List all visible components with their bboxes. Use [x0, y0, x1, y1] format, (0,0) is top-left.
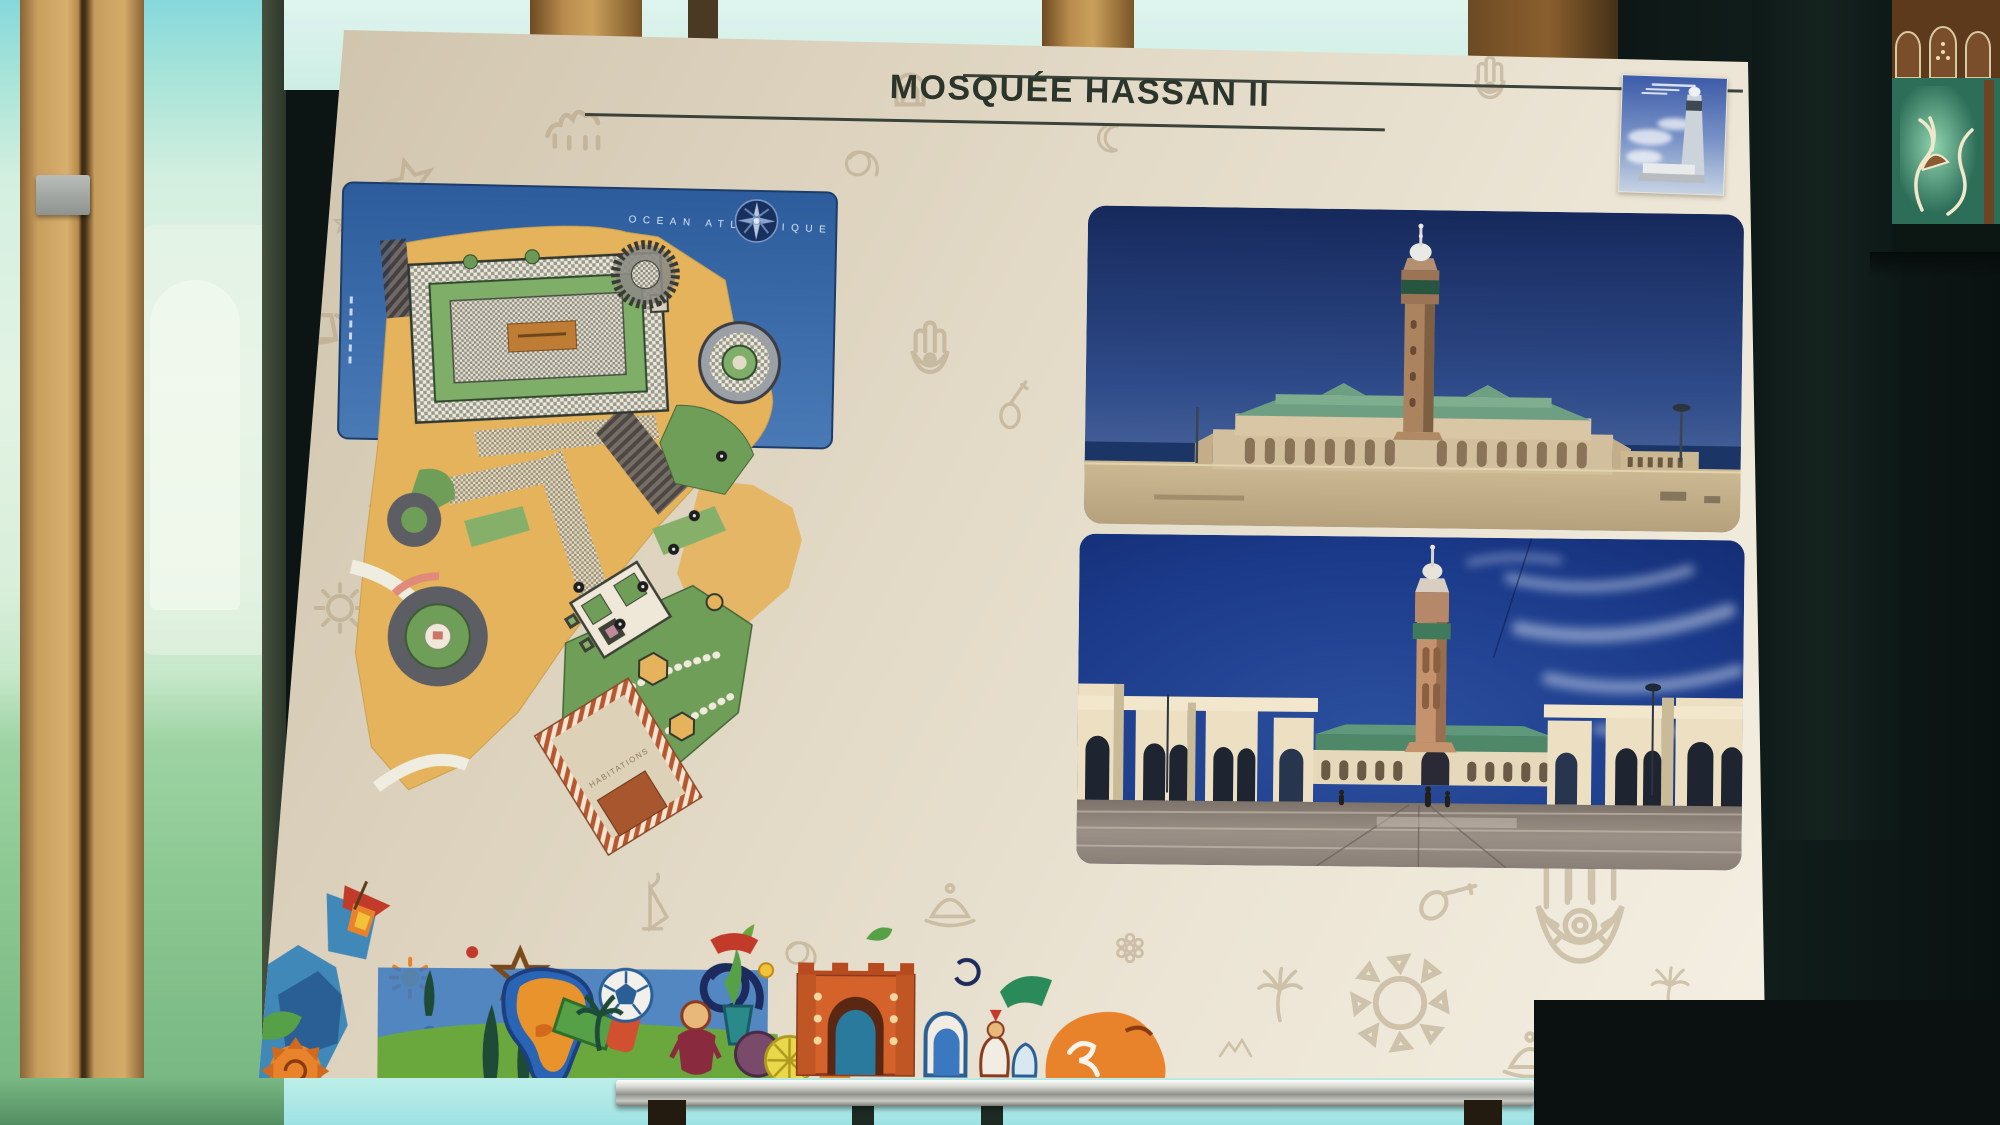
- easel-leg-right: [1464, 1100, 1502, 1125]
- window-latch: [36, 175, 90, 215]
- photo-mosque-courtyard-view: [1076, 534, 1744, 871]
- dark-floor-right: [1534, 1000, 2000, 1125]
- poster-board: MOSQUÉE HASSAN II: [0, 0, 2000, 1125]
- strip-kasbah-gate: [797, 962, 914, 1075]
- mosque-site-plan: OCEAN ATLANTIQUE: [314, 146, 846, 907]
- ornate-moorish-panel: [1892, 0, 2000, 258]
- easel-leg-left: [648, 1100, 686, 1125]
- panel-shelf-shadow: [1870, 252, 2000, 278]
- lawn-through-glass: [0, 1078, 284, 1125]
- dark-wall-fold: [1752, 0, 1902, 840]
- blurred-arch-through-glass: [150, 280, 240, 610]
- folk-art-strip: [257, 875, 1208, 1092]
- plan-compass-rose: [735, 200, 778, 243]
- plan-round-plaza: [699, 322, 781, 404]
- poster-thumbnail-image: [1618, 74, 1728, 196]
- easel-tray: [616, 1080, 1534, 1106]
- window-mullion-wood: [20, 0, 144, 1125]
- poster-title: MOSQUÉE HASSAN II: [880, 68, 1281, 115]
- photo-mosque-ocean-view: [1084, 205, 1744, 532]
- strip-arch-figures: [925, 1009, 1036, 1076]
